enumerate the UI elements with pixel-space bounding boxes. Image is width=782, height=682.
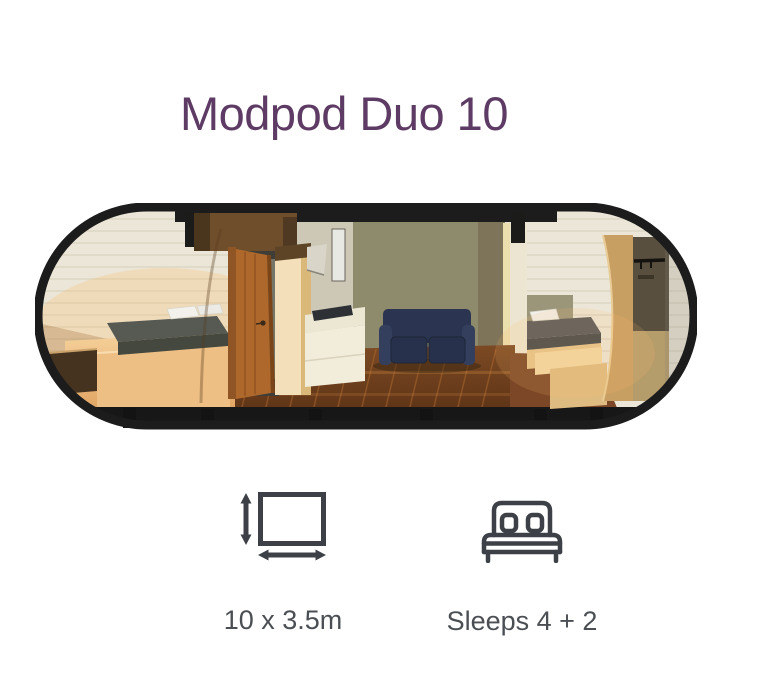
spec-dimensions: 10 x 3.5m xyxy=(188,492,378,636)
page-title: Modpod Duo 10 xyxy=(180,88,508,140)
double-bed-icon xyxy=(480,499,564,563)
spec-dimensions-label: 10 x 3.5m xyxy=(188,604,378,636)
spec-sleeps: Sleeps 4 + 2 xyxy=(427,499,617,637)
dimensions-icon xyxy=(239,492,327,566)
product-card: Modpod Duo 10 xyxy=(0,0,782,682)
spec-sleeps-label: Sleeps 4 + 2 xyxy=(427,605,617,637)
entrance-door xyxy=(228,247,279,399)
sofa xyxy=(373,309,481,373)
pod-cutaway-illustration xyxy=(35,203,697,437)
pod-cutaway-svg xyxy=(35,203,697,437)
